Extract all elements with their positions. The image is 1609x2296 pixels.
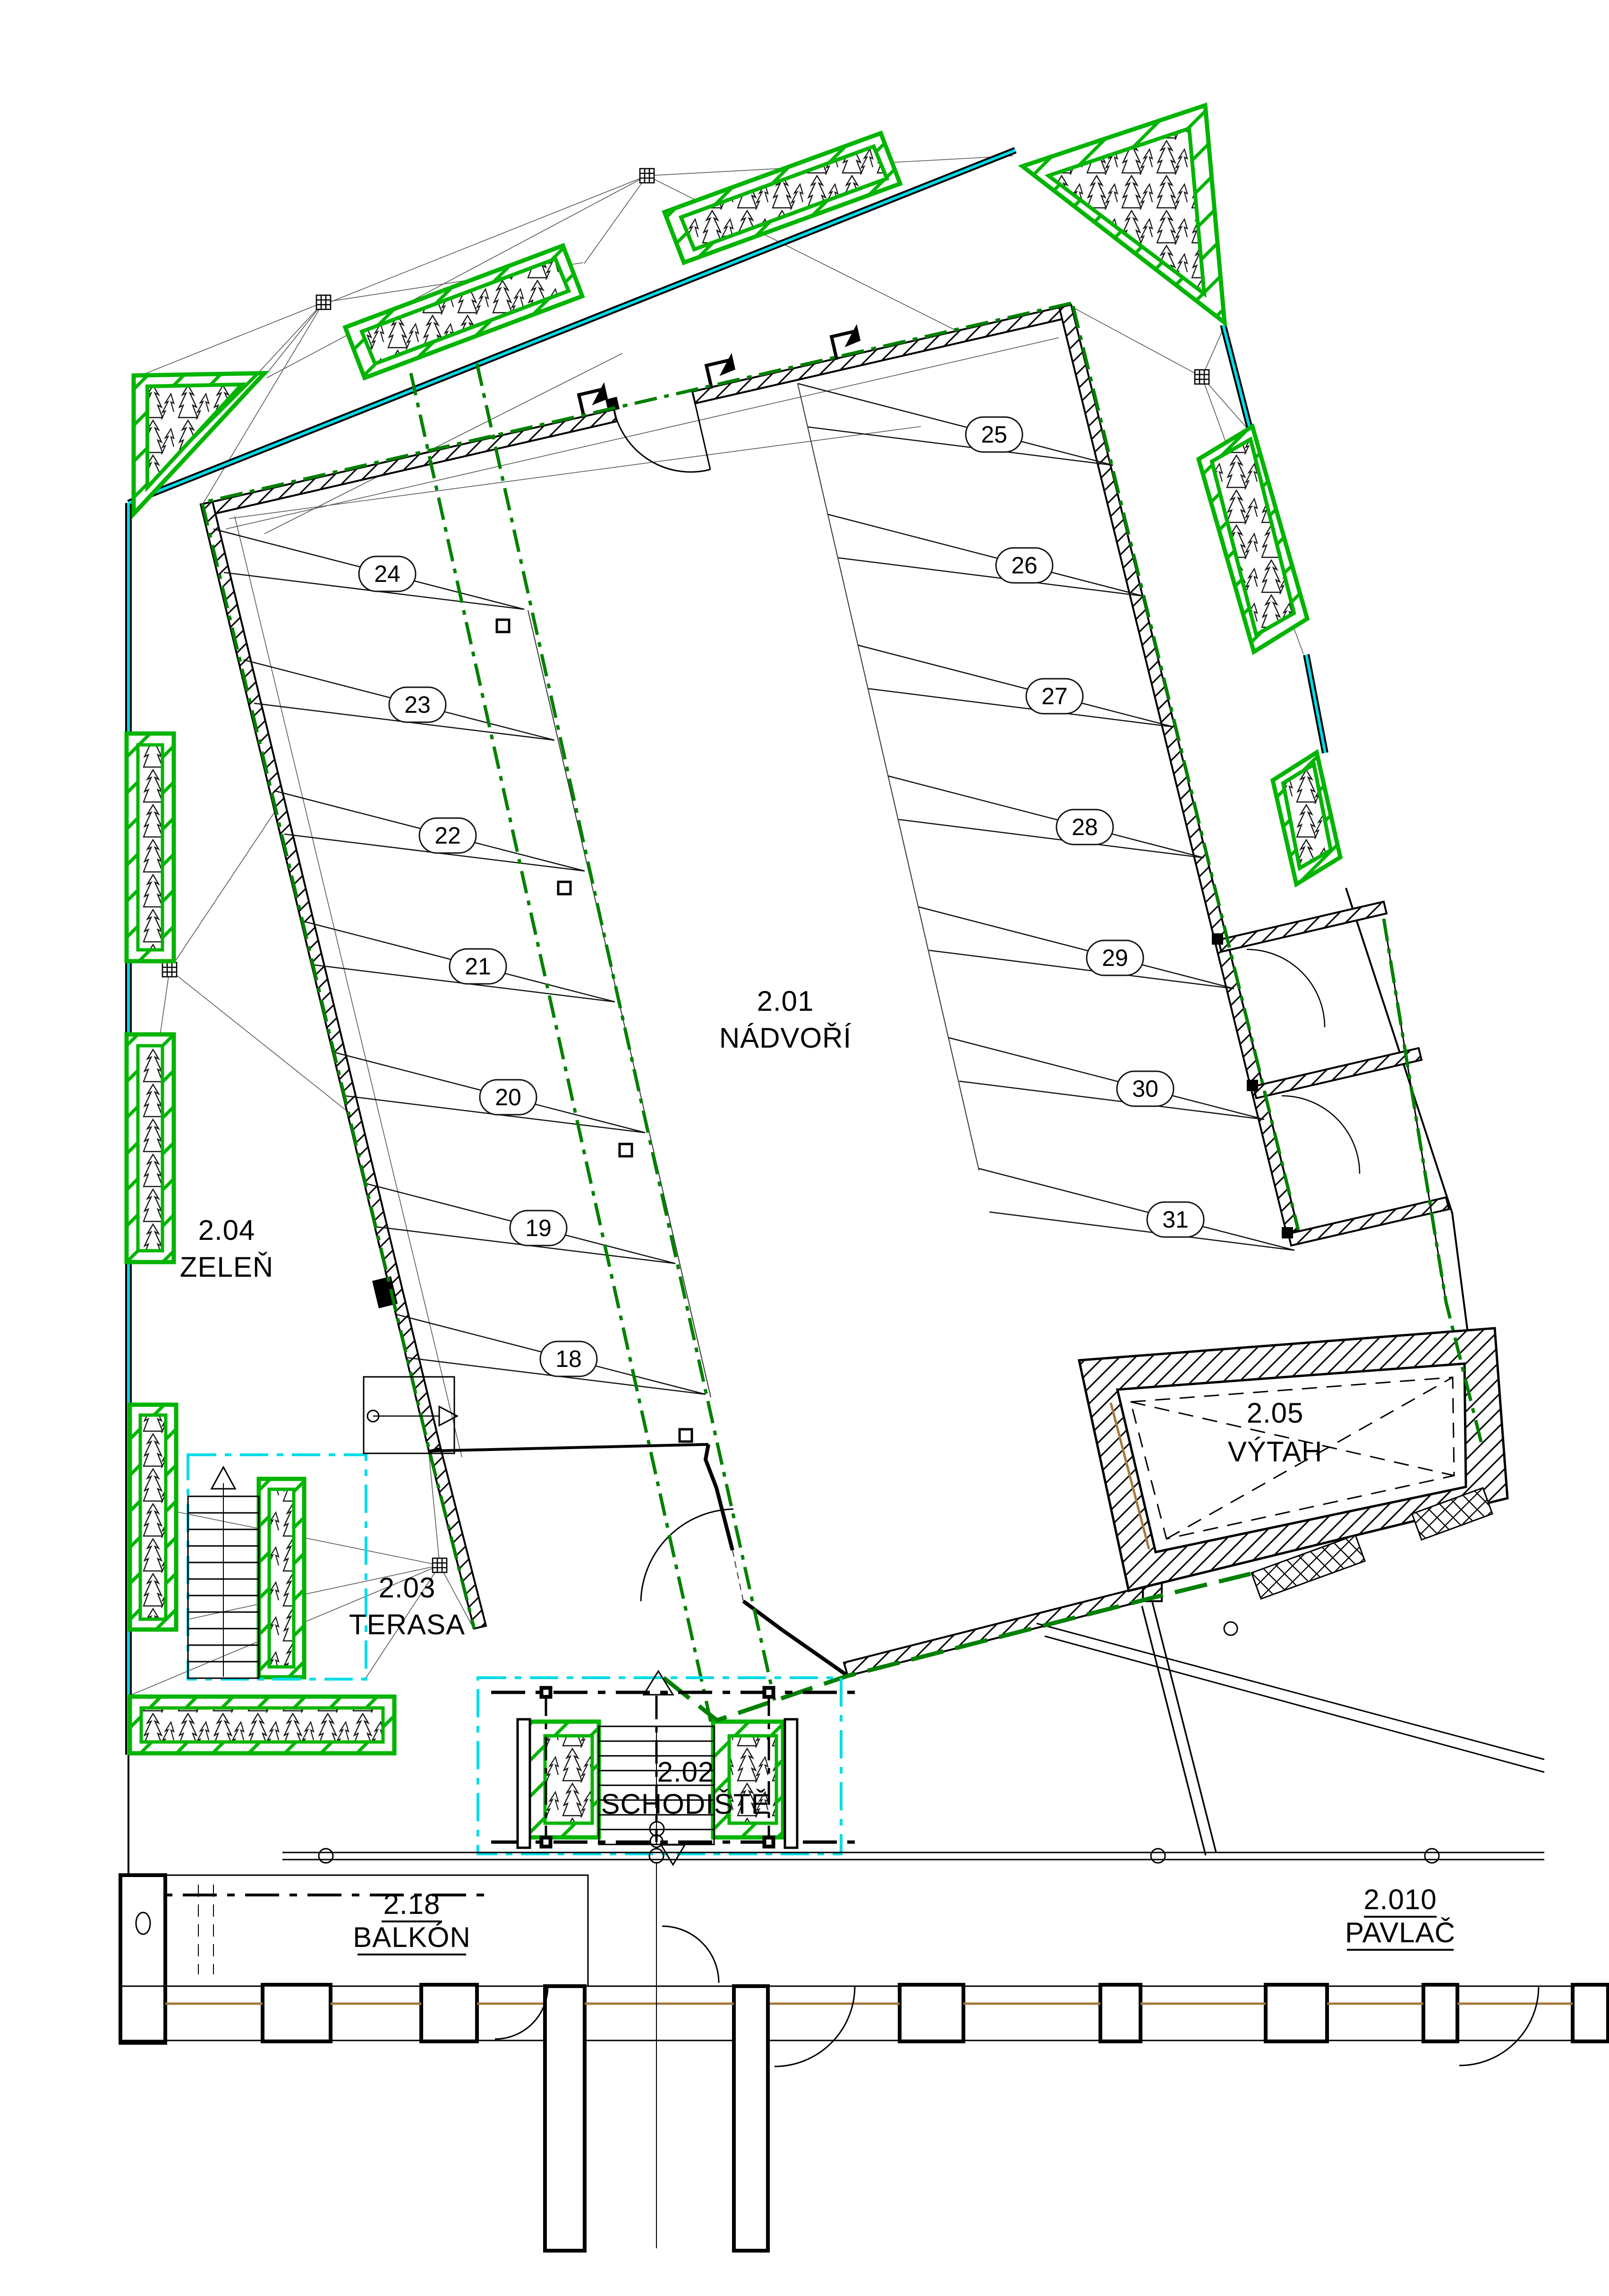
- room-divider-2: [1253, 1048, 1422, 1098]
- door-arc-3: [1459, 1986, 1539, 2066]
- parking-stalls-left: 24232221201918: [213, 529, 706, 1394]
- planter-top-1: [345, 246, 582, 378]
- stall-number: 19: [525, 1215, 552, 1241]
- planter-stairs-right: [259, 1479, 304, 1677]
- stall-number: 25: [981, 421, 1007, 448]
- top-wall-left: [201, 410, 617, 516]
- top-wall-door-arc: [614, 392, 710, 472]
- planter-top-left-triangle: [134, 373, 264, 514]
- floor-plan-page: 24232221201918 25262728293031: [0, 0, 1609, 2296]
- room-label-nadvori-name: NÁDVOŘÍ: [719, 1022, 851, 1054]
- planter-right-2: [1273, 752, 1340, 884]
- planter-bottom-left: [130, 1697, 394, 1753]
- wall-pier: [1100, 1985, 1141, 2041]
- roof-drain-icons: [162, 169, 1209, 1572]
- stall-divider: [798, 384, 1113, 465]
- wall-band-piers: [165, 1985, 1608, 2041]
- door-arc-2: [775, 1986, 855, 2066]
- stall-divider: [949, 1038, 1264, 1119]
- stall-number: 26: [1011, 552, 1038, 579]
- room-jamb-3: [1282, 1227, 1293, 1238]
- floor-plan-svg: 24232221201918 25262728293031: [0, 0, 1609, 2296]
- wall-pier: [1573, 1985, 1608, 2041]
- planter-stairs-left: [130, 1405, 176, 1630]
- stall-number: 24: [374, 561, 400, 587]
- stall-number: 29: [1102, 945, 1128, 971]
- corridor-door-arc: [662, 1926, 719, 1983]
- room-label-terasa-name: TERASA: [349, 1609, 465, 1640]
- room-label-terasa-id: 2.03: [379, 1572, 436, 1604]
- room-jamb-1: [1212, 933, 1223, 945]
- stall-divider: [828, 514, 1143, 596]
- stall-divider: [979, 1169, 1294, 1250]
- room-label-vytah-id: 2.05: [1247, 1397, 1304, 1429]
- drain-outlet-squares: [497, 620, 692, 1442]
- stall-number: 18: [555, 1346, 582, 1372]
- room-label-vytah-name: VÝTAH: [1228, 1436, 1323, 1468]
- planter-right-1: [1199, 427, 1307, 652]
- door-arc-1: [495, 1986, 548, 2039]
- wall-fittings: [372, 324, 1293, 1442]
- stall-divider: [858, 645, 1174, 727]
- stall-divider: [919, 907, 1234, 989]
- wall-pier: [900, 1985, 963, 2041]
- gallery-columns: [319, 1849, 1439, 1863]
- stall-number: 31: [1162, 1206, 1189, 1233]
- stall-number: 30: [1132, 1075, 1158, 1102]
- top-wall-right: [692, 305, 1074, 403]
- corridor-wall-right: [734, 1986, 768, 2251]
- stall-number: 20: [495, 1084, 521, 1110]
- room-label-schodiste-name: SCHODIŠTĚ: [601, 1788, 770, 1820]
- room-divider-1: [1218, 902, 1387, 952]
- corridor-wall-left: [545, 1986, 585, 2251]
- planter-left-1: [127, 734, 174, 961]
- room-label-balkon-name: BALKÓN: [353, 1921, 470, 1953]
- stall-number: 23: [404, 691, 431, 718]
- planter-schodiste-right: [713, 1722, 783, 1837]
- wall-pier: [1423, 1985, 1457, 2041]
- stall-number: 22: [434, 822, 461, 849]
- wall-pier: [263, 1985, 331, 2041]
- bottom-right-wall: [844, 1586, 1151, 1676]
- room-label-zelen-id: 2.04: [198, 1214, 255, 1246]
- wall-pier: [1266, 1985, 1327, 2041]
- room-label-nadvori-id: 2.01: [757, 985, 814, 1017]
- room-jamb-2: [1247, 1080, 1258, 1091]
- stall-number: 21: [465, 953, 491, 980]
- room-divider-3: [1288, 1197, 1449, 1246]
- room-label-pavlac-name: PAVLAČ: [1345, 1917, 1456, 1948]
- stall-number: 28: [1072, 814, 1098, 840]
- planter-schodiste-left: [529, 1722, 599, 1837]
- wall-pier: [421, 1985, 477, 2041]
- balcony-pier: [120, 1875, 165, 2043]
- planter-top-right-triangle: [1022, 105, 1225, 323]
- terrace-door-arc: [641, 1509, 733, 1601]
- landing: [364, 1377, 454, 1453]
- room-label-pavlac-id: 2.010: [1363, 1884, 1437, 1915]
- room-label-balkon-id: 2.18: [383, 1888, 441, 1920]
- stall-number: 27: [1041, 683, 1068, 709]
- planter-left-2: [127, 1034, 174, 1262]
- room-label-schodiste-id: 2.02: [657, 1756, 715, 1788]
- room-label-zelen-name: ZELEŇ: [180, 1251, 273, 1283]
- stall-divider: [888, 776, 1204, 858]
